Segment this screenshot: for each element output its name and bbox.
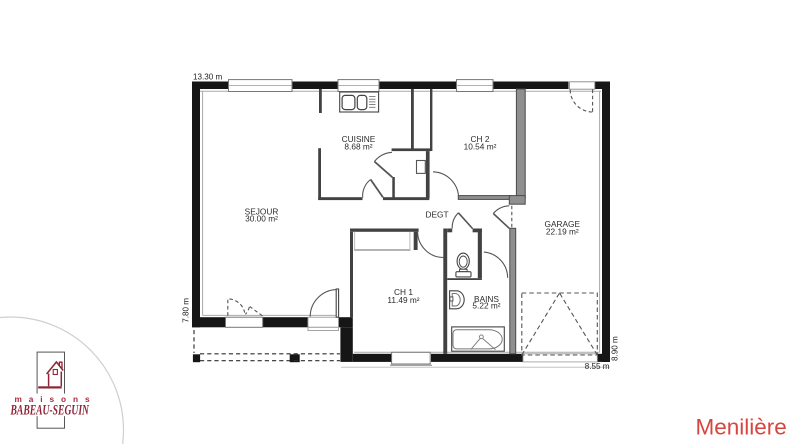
svg-text:30.00 m²: 30.00 m² — [245, 214, 278, 224]
svg-text:BABEAU-SEGUIN: BABEAU-SEGUIN — [10, 402, 90, 418]
svg-text:8.55 m: 8.55 m — [585, 362, 610, 371]
svg-text:7.80 m: 7.80 m — [182, 298, 191, 323]
svg-text:13.30 m: 13.30 m — [193, 73, 223, 82]
svg-text:8.68 m²: 8.68 m² — [344, 141, 372, 151]
svg-text:10.54 m²: 10.54 m² — [464, 142, 497, 152]
svg-text:DEGT: DEGT — [425, 210, 448, 220]
svg-text:Menilière: Menilière — [696, 415, 787, 440]
svg-text:22.19 m²: 22.19 m² — [546, 226, 579, 236]
svg-text:11.49 m²: 11.49 m² — [387, 295, 419, 305]
svg-text:5.22 m²: 5.22 m² — [472, 301, 500, 311]
svg-text:8.90 m: 8.90 m — [610, 336, 619, 361]
